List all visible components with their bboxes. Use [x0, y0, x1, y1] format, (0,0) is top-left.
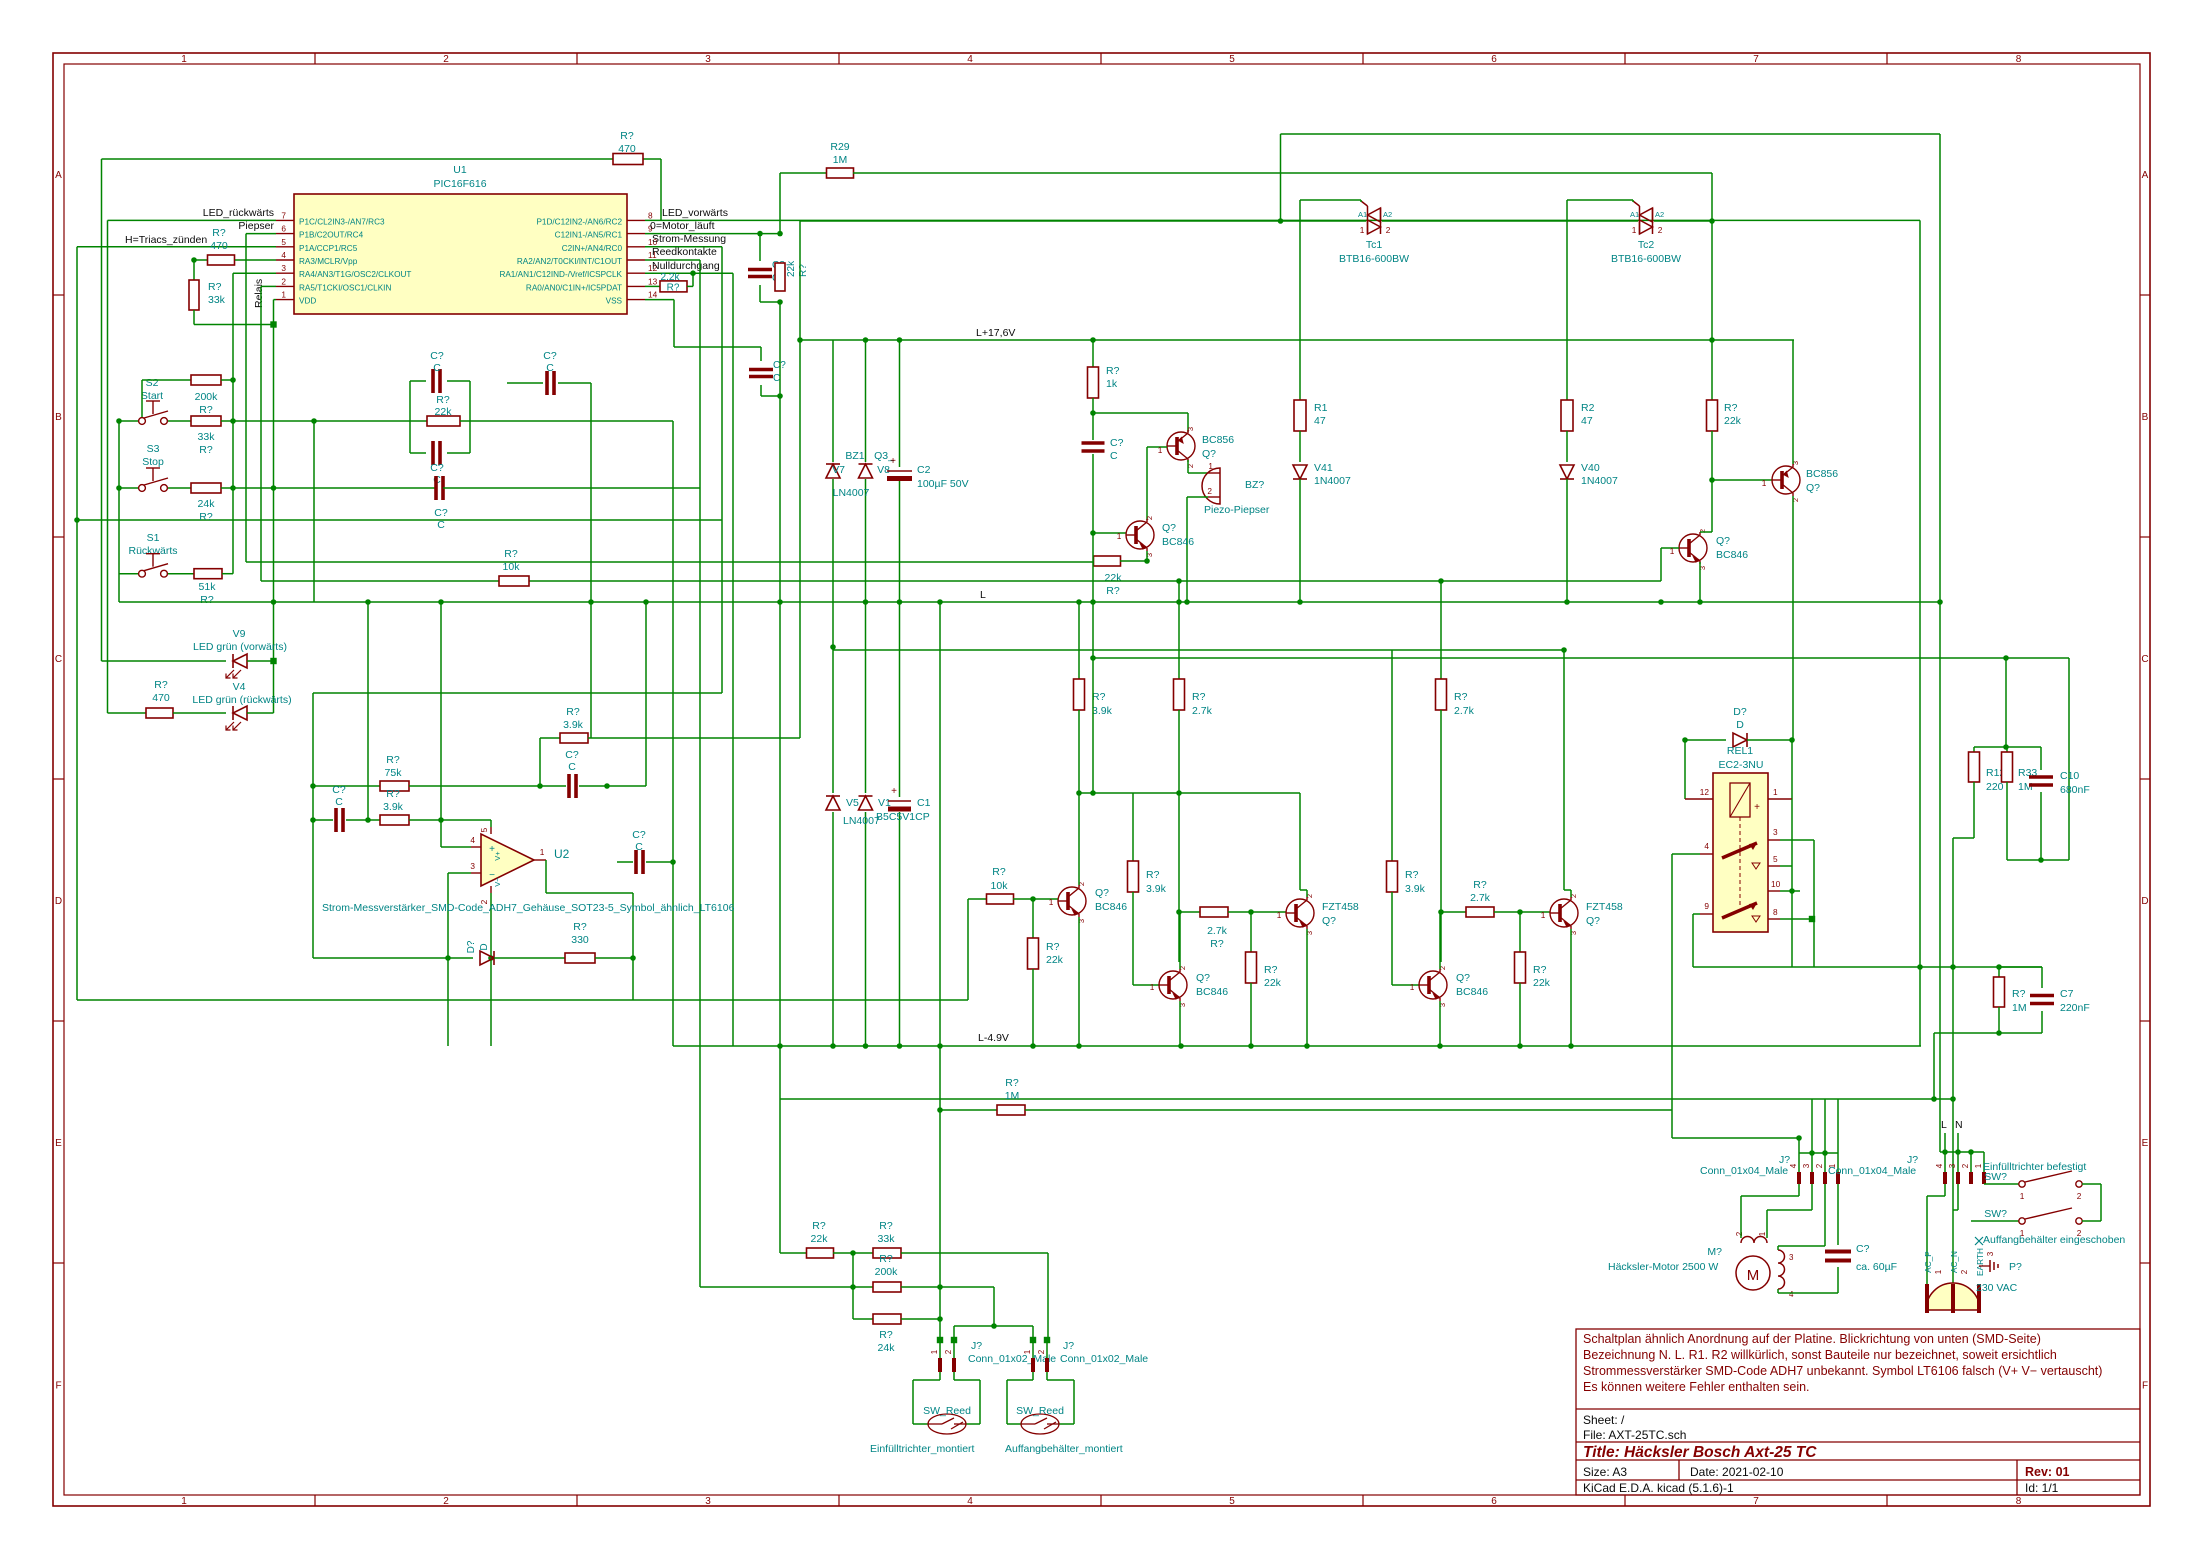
svg-text:C: C [433, 362, 441, 374]
svg-text:E: E [55, 1138, 62, 1149]
svg-text:R?: R? [1146, 869, 1160, 881]
svg-text:C: C [1110, 450, 1118, 462]
svg-text:Strommessverstärker SMD-Code A: Strommessverstärker SMD-Code ADH7 unbeka… [1583, 1364, 2102, 1378]
svg-text:Tc1: Tc1 [1366, 239, 1383, 251]
svg-text:C10: C10 [2060, 770, 2079, 782]
svg-text:2: 2 [1207, 486, 1212, 496]
svg-text:C?: C? [1110, 437, 1124, 449]
svg-text:+: + [1754, 802, 1760, 813]
svg-text:SW_Reed: SW_Reed [923, 1405, 971, 1417]
svg-text:Auffangbehälter eingeschoben: Auffangbehälter eingeschoben [1983, 1234, 2125, 1246]
svg-text:P1A/CCP1/RC5: P1A/CCP1/RC5 [299, 244, 358, 253]
svg-text:EC2-3NU: EC2-3NU [1719, 759, 1764, 771]
svg-text:A1: A1 [1630, 210, 1639, 219]
svg-text:Date: 2021-02-10: Date: 2021-02-10 [1690, 1465, 1784, 1479]
svg-text:1: 1 [181, 1496, 187, 1507]
svg-text:A: A [2142, 170, 2149, 181]
svg-text:2.2k: 2.2k [661, 272, 681, 283]
svg-text:V9: V9 [233, 628, 246, 640]
svg-text:3.9k: 3.9k [563, 719, 584, 731]
svg-text:A2: A2 [1655, 210, 1664, 219]
svg-text:Nulldurchgang: Nulldurchgang [652, 260, 720, 272]
svg-text:22k: 22k [811, 1233, 829, 1245]
svg-text:9: 9 [1704, 901, 1709, 911]
svg-text:R?: R? [573, 921, 587, 933]
svg-text:1: 1 [1934, 1269, 1943, 1274]
svg-text:BC846: BC846 [1196, 986, 1228, 998]
svg-text:Piezo-Piepser: Piezo-Piepser [1204, 504, 1270, 516]
svg-text:V7: V7 [832, 464, 845, 476]
svg-text:4: 4 [1789, 1290, 1794, 1299]
svg-text:R?: R? [212, 227, 226, 239]
svg-text:1: 1 [1360, 225, 1365, 235]
svg-text:C?: C? [332, 784, 346, 796]
svg-text:C: C [635, 841, 643, 853]
svg-text:Id: 1/1: Id: 1/1 [2025, 1481, 2059, 1495]
svg-text:REL1: REL1 [1727, 745, 1753, 757]
svg-text:1: 1 [1150, 982, 1155, 992]
svg-text:4: 4 [1935, 1163, 1944, 1168]
svg-text:2: 2 [1037, 1349, 1046, 1354]
svg-text:1M: 1M [1005, 1090, 1020, 1102]
svg-text:3.9k: 3.9k [383, 801, 404, 813]
svg-text:C?: C? [565, 749, 579, 761]
svg-text:R?: R? [200, 594, 214, 606]
svg-text:BC846: BC846 [1456, 986, 1488, 998]
svg-text:KiCad E.D.A. kicad (5.1.6)-1: KiCad E.D.A. kicad (5.1.6)-1 [1583, 1481, 1734, 1495]
svg-text:BC856: BC856 [1806, 468, 1838, 480]
svg-text:Size: A3: Size: A3 [1583, 1465, 1627, 1479]
svg-text:2: 2 [1960, 1269, 1969, 1274]
svg-text:47: 47 [1581, 415, 1593, 427]
svg-text:51k: 51k [199, 581, 217, 593]
svg-text:2: 2 [1735, 1231, 1744, 1236]
svg-text:680nF: 680nF [2060, 784, 2090, 796]
svg-text:33k: 33k [198, 431, 216, 443]
svg-text:R?: R? [1264, 964, 1278, 976]
svg-text:R29: R29 [830, 141, 849, 153]
svg-text:330: 330 [571, 934, 589, 946]
svg-text:Q?: Q? [1162, 522, 1176, 534]
svg-text:D?: D? [1733, 706, 1747, 718]
svg-text:8: 8 [2016, 54, 2022, 65]
svg-text:VDD: VDD [299, 297, 316, 306]
svg-text:B: B [55, 412, 62, 423]
svg-text:F: F [2142, 1381, 2148, 1392]
svg-text:R?: R? [199, 444, 213, 456]
svg-text:Q?: Q? [1586, 915, 1600, 927]
svg-text:2.7k: 2.7k [1454, 705, 1475, 717]
svg-text:1k: 1k [1106, 378, 1118, 390]
svg-text:U2: U2 [554, 847, 570, 861]
svg-text:FZT458: FZT458 [1322, 901, 1359, 913]
svg-text:Q?: Q? [1322, 915, 1336, 927]
svg-text:1: 1 [1541, 910, 1546, 920]
svg-text:U1: U1 [453, 164, 467, 176]
svg-text:P?: P? [2009, 1261, 2022, 1273]
svg-text:2: 2 [1386, 225, 1391, 235]
svg-text:1: 1 [1758, 1231, 1767, 1236]
svg-text:S3: S3 [147, 443, 160, 455]
svg-text:7: 7 [1753, 1496, 1759, 1507]
svg-text:V−: V− [493, 877, 502, 887]
svg-text:1: 1 [1049, 897, 1054, 907]
svg-text:75k: 75k [385, 767, 403, 779]
svg-text:R?: R? [208, 281, 222, 293]
svg-text:Q?: Q? [1196, 972, 1210, 984]
svg-text:1: 1 [1670, 546, 1675, 556]
svg-text:V40: V40 [1581, 462, 1600, 474]
svg-text:4: 4 [281, 250, 286, 260]
svg-text:2.7k: 2.7k [1470, 892, 1491, 904]
svg-text:10: 10 [1771, 879, 1781, 889]
svg-text:L: L [980, 589, 986, 601]
svg-text:3.9k: 3.9k [1092, 705, 1113, 717]
svg-text:8: 8 [2016, 1496, 2022, 1507]
svg-text:Schaltplan ähnlich Anordnung a: Schaltplan ähnlich Anordnung auf der Pla… [1583, 1332, 2041, 1346]
svg-text:7: 7 [281, 210, 286, 220]
svg-text:C2: C2 [917, 464, 931, 476]
svg-text:D: D [479, 943, 490, 950]
svg-text:10k: 10k [503, 561, 521, 573]
svg-text:4: 4 [470, 835, 475, 845]
svg-text:33k: 33k [878, 1233, 896, 1245]
svg-text:2.7k: 2.7k [1192, 705, 1213, 717]
svg-text:3: 3 [1986, 1251, 1995, 1256]
svg-text:R?: R? [1724, 402, 1738, 414]
svg-text:22k: 22k [1105, 572, 1123, 584]
svg-text:R?: R? [199, 511, 213, 523]
svg-text:Auffangbehälter_montiert: Auffangbehälter_montiert [1005, 1443, 1123, 1455]
svg-text:22k: 22k [1264, 977, 1282, 989]
svg-text:SW?: SW? [1984, 1208, 2007, 1220]
svg-text:V5: V5 [846, 797, 859, 809]
svg-text:3: 3 [281, 263, 286, 273]
svg-text:P1C/CL2IN3-/AN7/RC3: P1C/CL2IN3-/AN7/RC3 [299, 217, 385, 226]
svg-text:BZ1: BZ1 [845, 450, 864, 462]
svg-text:R?: R? [879, 1253, 893, 1265]
svg-text:3: 3 [705, 1496, 711, 1507]
svg-text:R?: R? [1192, 691, 1206, 703]
svg-text:LED grün (rückwärts): LED grün (rückwärts) [192, 694, 291, 706]
svg-text:C: C [335, 796, 343, 808]
svg-text:C: C [773, 373, 780, 384]
svg-text:22k: 22k [786, 260, 797, 277]
svg-text:12: 12 [1700, 787, 1710, 797]
svg-text:R?: R? [1405, 869, 1419, 881]
svg-text:2: 2 [443, 54, 449, 65]
svg-text:2.7k: 2.7k [1207, 925, 1228, 937]
svg-text:C?: C? [434, 507, 448, 519]
svg-text:10k: 10k [991, 880, 1009, 892]
svg-text:BC846: BC846 [1095, 901, 1127, 913]
svg-text:22k: 22k [1533, 977, 1551, 989]
svg-text:R?: R? [154, 679, 168, 691]
svg-text:C: C [437, 519, 445, 531]
svg-text:Bezeichnung N. L. R1. R2 willk: Bezeichnung N. L. R1. R2 willkürlich, so… [1583, 1348, 2057, 1362]
svg-text:3: 3 [470, 861, 475, 871]
svg-text:R?: R? [1533, 964, 1547, 976]
svg-text:Q?: Q? [1202, 448, 1216, 460]
svg-text:A: A [55, 170, 62, 181]
svg-text:5: 5 [479, 827, 489, 832]
svg-text:R?: R? [1106, 365, 1120, 377]
svg-text:D: D [2141, 896, 2148, 907]
svg-text:B: B [2142, 412, 2149, 423]
svg-text:Q?: Q? [1095, 887, 1109, 899]
svg-text:RA0/AN0/C1IN+/IC5PDAT: RA0/AN0/C1IN+/IC5PDAT [526, 283, 622, 292]
svg-text:C?: C? [632, 829, 646, 841]
svg-text:J?: J? [1063, 1340, 1074, 1352]
svg-text:33k: 33k [208, 294, 226, 306]
svg-text:Q?: Q? [1716, 535, 1730, 547]
svg-text:BC856: BC856 [1202, 434, 1234, 446]
svg-text:6: 6 [1491, 1496, 1497, 1507]
svg-text:R?: R? [1046, 941, 1060, 953]
svg-text:Strom-Messung: Strom-Messung [652, 233, 726, 245]
svg-text:AC_N: AC_N [1949, 1251, 1959, 1273]
svg-text:SW_Reed: SW_Reed [1016, 1405, 1064, 1417]
svg-text:C: C [2141, 654, 2148, 665]
svg-text:C: C [546, 362, 554, 374]
svg-text:R?: R? [1473, 879, 1487, 891]
svg-text:R?: R? [812, 1220, 826, 1232]
svg-text:2: 2 [281, 276, 286, 286]
svg-text:24k: 24k [878, 1342, 896, 1354]
svg-text:Einfülltrichter befestigt: Einfülltrichter befestigt [1983, 1161, 2086, 1173]
svg-text:C?: C? [543, 350, 557, 362]
svg-text:6: 6 [1491, 54, 1497, 65]
svg-text:1N4007: 1N4007 [1581, 475, 1618, 487]
svg-text:4: 4 [967, 1496, 973, 1507]
svg-text:Einfülltrichter_montiert: Einfülltrichter_montiert [870, 1443, 975, 1455]
svg-text:100µF 50V: 100µF 50V [917, 478, 969, 490]
svg-text:H=Triacs_zünden: H=Triacs_zünden [125, 234, 207, 246]
svg-text:Häcksler-Motor 2500 W: Häcksler-Motor 2500 W [1608, 1261, 1718, 1273]
svg-text:13: 13 [648, 276, 658, 286]
svg-text:1: 1 [1762, 478, 1767, 488]
svg-text:Strom-Messverstärker_SMD-Code_: Strom-Messverstärker_SMD-Code_ADH7_Gehäu… [322, 902, 735, 914]
svg-text:47: 47 [1314, 415, 1326, 427]
svg-text:4: 4 [1704, 841, 1709, 851]
svg-text:3: 3 [1948, 1163, 1957, 1168]
svg-text:Reedkontakte: Reedkontakte [652, 246, 717, 258]
svg-text:22k: 22k [1724, 415, 1742, 427]
svg-text:LED_vorwärts: LED_vorwärts [662, 207, 728, 219]
svg-text:3: 3 [1186, 427, 1195, 431]
svg-text:Piepser: Piepser [238, 220, 274, 232]
svg-text:R?: R? [992, 866, 1006, 878]
svg-text:R?: R? [566, 706, 580, 718]
svg-text:R?: R? [2012, 988, 2026, 1000]
svg-text:1: 1 [1158, 445, 1163, 455]
svg-text:+: + [891, 786, 897, 797]
svg-text:5: 5 [281, 237, 286, 247]
svg-text:5: 5 [1229, 1496, 1235, 1507]
svg-text:C7: C7 [2060, 988, 2074, 1000]
svg-text:AC_P: AC_P [1923, 1251, 1933, 1273]
svg-text:3: 3 [1789, 1253, 1794, 1262]
svg-text:LN4007: LN4007 [843, 815, 880, 827]
svg-text:P1D/C12IN2-/AN6/RC2: P1D/C12IN2-/AN6/RC2 [536, 217, 622, 226]
svg-text:R?: R? [620, 130, 634, 142]
svg-text:1: 1 [1410, 982, 1415, 992]
svg-text:C?: C? [1856, 1243, 1870, 1255]
svg-text:470: 470 [152, 692, 170, 704]
svg-text:7: 7 [1753, 54, 1759, 65]
svg-text:+: + [890, 456, 896, 467]
svg-text:FZT458: FZT458 [1586, 901, 1623, 913]
svg-text:ca. 60µF: ca. 60µF [1856, 1261, 1897, 1273]
svg-text:1M: 1M [2018, 781, 2033, 793]
svg-text:1: 1 [1773, 787, 1778, 797]
svg-text:200k: 200k [195, 391, 219, 403]
svg-text:Conn_01x04_Male: Conn_01x04_Male [1700, 1165, 1788, 1177]
svg-text:220nF: 220nF [2060, 1002, 2090, 1014]
svg-text:R1: R1 [1314, 402, 1328, 414]
svg-text:C?: C? [430, 462, 444, 474]
svg-text:8: 8 [1773, 907, 1778, 917]
svg-text:Rev: 01: Rev: 01 [2025, 1465, 2070, 1479]
svg-text:RA4/AN3/T1G/OSC2/CLKOUT: RA4/AN3/T1G/OSC2/CLKOUT [299, 270, 411, 279]
svg-text:24k: 24k [198, 498, 216, 510]
svg-text:Q?: Q? [1806, 482, 1820, 494]
svg-text:LED grün (vorwärts): LED grün (vorwärts) [193, 641, 287, 653]
svg-text:Relais: Relais [253, 279, 265, 308]
svg-text:D: D [55, 896, 62, 907]
svg-text:J?: J? [971, 1340, 982, 1352]
svg-text:R?: R? [199, 404, 213, 416]
svg-text:R?: R? [436, 394, 450, 406]
svg-text:230 VAC: 230 VAC [1976, 1282, 2018, 1294]
svg-text:0=Motor_läuft: 0=Motor_läuft [650, 220, 715, 232]
svg-text:S1: S1 [147, 532, 160, 544]
svg-text:1: 1 [1117, 531, 1122, 541]
svg-text:V41: V41 [1314, 462, 1333, 474]
svg-text:200k: 200k [875, 1266, 899, 1278]
svg-text:1: 1 [1277, 910, 1282, 920]
svg-text:1N4007: 1N4007 [1314, 475, 1351, 487]
svg-text:Title: Häcksler Bosch Axt-25 T: Title: Häcksler Bosch Axt-25 TC [1583, 1444, 1817, 1461]
svg-text:R?: R? [1106, 585, 1120, 597]
svg-text:4: 4 [967, 54, 973, 65]
svg-text:A1: A1 [1358, 210, 1367, 219]
svg-text:L-4.9V: L-4.9V [978, 1032, 1009, 1044]
svg-text:1M: 1M [2012, 1002, 2027, 1014]
svg-text:2: 2 [1815, 1163, 1824, 1168]
svg-text:1: 1 [540, 847, 545, 857]
svg-text:PIC16F616: PIC16F616 [433, 178, 486, 190]
svg-text:F: F [55, 1381, 61, 1392]
svg-text:Tc2: Tc2 [1638, 239, 1655, 251]
svg-text:Q?: Q? [1456, 972, 1470, 984]
svg-text:C: C [568, 761, 576, 773]
svg-text:22k: 22k [435, 406, 453, 418]
svg-text:2: 2 [1961, 1163, 1970, 1168]
svg-text:R?: R? [1454, 691, 1468, 703]
svg-text:3.9k: 3.9k [1405, 883, 1426, 895]
svg-text:470: 470 [210, 240, 228, 252]
svg-text:2: 2 [1658, 225, 1663, 235]
svg-text:3: 3 [1802, 1163, 1811, 1168]
svg-text:470: 470 [618, 143, 636, 155]
svg-text:E: E [2142, 1138, 2149, 1149]
svg-text:BTB16-600BW: BTB16-600BW [1611, 253, 1681, 265]
svg-text:R2: R2 [1581, 402, 1595, 414]
svg-text:2: 2 [1145, 516, 1154, 520]
svg-text:M?: M? [1707, 1246, 1722, 1258]
svg-text:Conn_01x04_Male: Conn_01x04_Male [1828, 1165, 1916, 1177]
svg-text:1: 1 [930, 1349, 939, 1354]
svg-text:VSS: VSS [606, 297, 623, 306]
svg-text:P1B/C2OUT/RC4: P1B/C2OUT/RC4 [299, 231, 364, 240]
svg-text:8: 8 [648, 210, 653, 220]
svg-text:Stop: Stop [142, 456, 164, 468]
svg-text:2: 2 [443, 1496, 449, 1507]
svg-text:BC846: BC846 [1162, 536, 1194, 548]
svg-text:RA5/T1CKI/OSC1/CLKIN: RA5/T1CKI/OSC1/CLKIN [299, 283, 391, 292]
svg-text:BC846: BC846 [1716, 549, 1748, 561]
svg-text:4: 4 [1789, 1163, 1798, 1168]
svg-text:C?: C? [430, 350, 444, 362]
svg-text:1: 1 [1974, 1163, 1983, 1168]
svg-text:RA1/AN1/C12IND-/Vref/ICSPCLK: RA1/AN1/C12IND-/Vref/ICSPCLK [499, 270, 622, 279]
svg-text:1: 1 [1023, 1349, 1032, 1354]
svg-text:BZ?: BZ? [1245, 479, 1264, 491]
svg-text:R?: R? [1092, 691, 1106, 703]
svg-text:C12IN1-/AN5/RC1: C12IN1-/AN5/RC1 [555, 231, 623, 240]
svg-text:R?: R? [667, 283, 680, 294]
svg-text:1: 1 [1208, 461, 1213, 471]
svg-text:R?: R? [879, 1329, 893, 1341]
svg-text:1: 1 [1632, 225, 1637, 235]
svg-text:BTB16-600BW: BTB16-600BW [1339, 253, 1409, 265]
svg-text:Conn_01x02_Male: Conn_01x02_Male [1060, 1353, 1148, 1365]
svg-text:C: C [55, 654, 62, 665]
svg-text:V+: V+ [493, 851, 502, 861]
svg-text:1M: 1M [833, 154, 848, 166]
svg-text:C1: C1 [917, 797, 931, 809]
svg-text:D?: D? [466, 940, 477, 953]
svg-text:5: 5 [1229, 54, 1235, 65]
svg-text:1: 1 [281, 290, 286, 300]
svg-text:14: 14 [648, 290, 658, 300]
svg-text:C2IN+/AN4/RC0: C2IN+/AN4/RC0 [562, 244, 623, 253]
svg-text:R?: R? [879, 1220, 893, 1232]
svg-text:A2: A2 [1383, 210, 1392, 219]
svg-text:3: 3 [1773, 827, 1778, 837]
svg-text:6: 6 [281, 224, 286, 234]
svg-text:Sheet: /: Sheet: / [1583, 1413, 1625, 1427]
svg-text:22k: 22k [1046, 954, 1064, 966]
svg-text:3.9k: 3.9k [1146, 883, 1167, 895]
svg-text:B5C5V1CP: B5C5V1CP [876, 811, 930, 823]
svg-text:Es können weitere Fehler entha: Es können weitere Fehler enthalten sein. [1583, 1380, 1810, 1394]
svg-text:L: L [1941, 1119, 1947, 1131]
svg-text:R?: R? [1005, 1077, 1019, 1089]
svg-text:Start: Start [141, 390, 163, 402]
svg-text:2: 2 [2077, 1191, 2082, 1201]
svg-text:L+17,6V: L+17,6V [976, 327, 1015, 339]
svg-text:N: N [1955, 1119, 1963, 1131]
svg-text:File: AXT-25TC.sch: File: AXT-25TC.sch [1583, 1428, 1686, 1442]
svg-text:3: 3 [705, 54, 711, 65]
svg-text:V4: V4 [233, 681, 246, 693]
svg-text:M: M [1747, 1267, 1760, 1284]
svg-text:5: 5 [1773, 854, 1778, 864]
svg-text:LN4007: LN4007 [833, 487, 870, 499]
svg-text:S2: S2 [146, 377, 159, 389]
